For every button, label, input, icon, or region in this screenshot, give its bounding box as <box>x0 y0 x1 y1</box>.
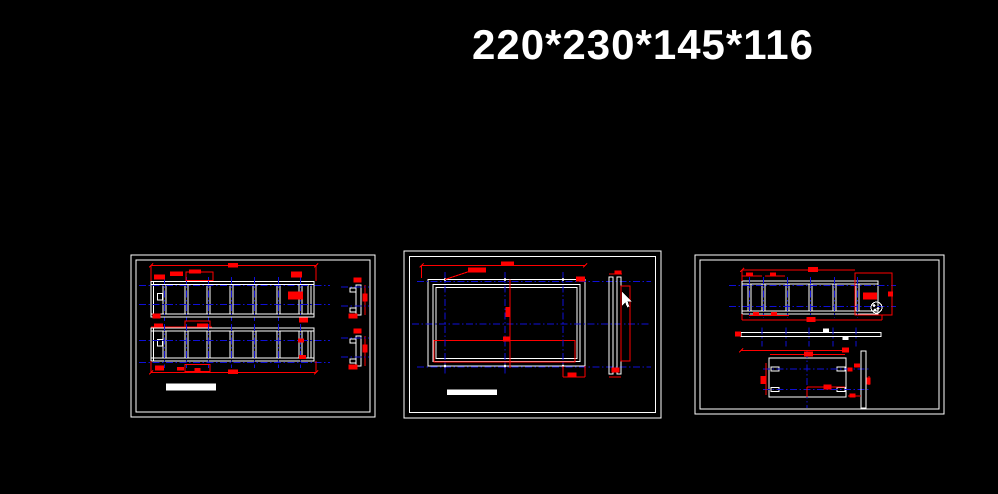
cad-canvas <box>0 0 998 494</box>
panel-right <box>695 255 944 414</box>
panel-center <box>404 251 661 418</box>
cad-viewport: 220*230*145*116 <box>0 0 998 494</box>
panel-left <box>131 255 375 417</box>
